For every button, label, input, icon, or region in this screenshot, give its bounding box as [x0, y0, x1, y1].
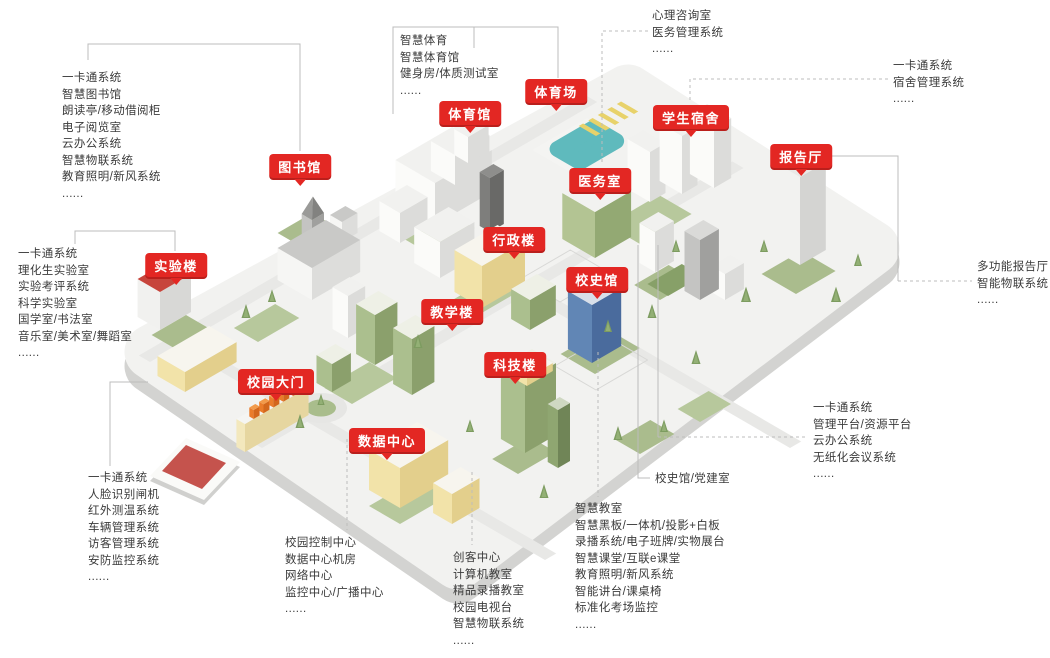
lab-systems-list: 一卡通系统 理化生实验室 实验考评系统 科学实验室 国学室/书法室 音乐室/美术… — [18, 246, 132, 362]
list-item: 医务管理系统 — [652, 25, 723, 42]
list-item: 一卡通系统 — [813, 400, 912, 417]
badge-gate: 校园大门 — [238, 369, 314, 395]
list-item: 一卡通系统 — [62, 70, 161, 87]
campus-map-art — [138, 92, 872, 576]
list-item: 一卡通系统 — [18, 246, 132, 263]
classroom-systems-list: 智慧教室 智慧黑板/一体机/投影+白板 录播系统/电子班牌/实物展台 智慧课堂/… — [575, 501, 725, 633]
list-item: ...... — [400, 83, 499, 100]
list-item: 智慧黑板/一体机/投影+白板 — [575, 518, 725, 535]
sports-systems-list: 智慧体育 智慧体育馆 健身房/体质测试室 ...... — [400, 33, 499, 99]
list-item: 云办公系统 — [62, 136, 161, 153]
list-item: 智慧图书馆 — [62, 87, 161, 104]
list-item: 健身房/体质测试室 — [400, 66, 499, 83]
connector-dorm — [690, 79, 888, 102]
list-item: 访客管理系统 — [88, 536, 159, 553]
list-item: 创客中心 — [453, 550, 524, 567]
list-item: 朗读亭/移动借阅柜 — [62, 103, 161, 120]
list-item: ...... — [18, 345, 132, 362]
list-item: ...... — [285, 601, 384, 618]
list-item: 实验考评系统 — [18, 279, 132, 296]
clinic-systems-list: 心理咨询室 医务管理系统 ...... — [652, 8, 723, 58]
list-item: 一卡通系统 — [893, 58, 964, 75]
list-item: 智能物联系统 — [977, 276, 1048, 293]
badge-stadium: 体育场 — [525, 79, 587, 105]
list-item: ...... — [62, 186, 161, 203]
library-systems-list: 一卡通系统 智慧图书馆 朗读亭/移动借阅柜 电子阅览室 云办公系统 智慧物联系统… — [62, 70, 161, 202]
list-item: 录播系统/电子班牌/实物展台 — [575, 534, 725, 551]
list-item: 智慧体育馆 — [400, 50, 499, 67]
list-item: 智慧教室 — [575, 501, 725, 518]
list-item: 红外测温系统 — [88, 503, 159, 520]
list-item: 理化生实验室 — [18, 263, 132, 280]
list-item: ...... — [652, 41, 723, 58]
hall-systems-list: 多功能报告厅 智能物联系统 ...... — [977, 259, 1048, 309]
badge-hall: 报告厅 — [770, 144, 832, 170]
list-item: 智慧物联系统 — [62, 153, 161, 170]
list-item: 科学实验室 — [18, 296, 132, 313]
list-item: 无纸化会议系统 — [813, 450, 912, 467]
list-item: 管理平台/资源平台 — [813, 417, 912, 434]
list-item: 智慧课堂/互联e课堂 — [575, 551, 725, 568]
list-item: 一卡通系统 — [88, 470, 159, 487]
dorm-systems-list: 一卡通系统 宿舍管理系统 ...... — [893, 58, 964, 108]
list-item: 监控中心/广播中心 — [285, 585, 384, 602]
list-item: 智慧物联系统 — [453, 616, 524, 633]
gate-systems-list: 一卡通系统 人脸识别闸机 红外测温系统 车辆管理系统 访客管理系统 安防监控系统… — [88, 470, 159, 586]
badge-dorm: 学生宿舍 — [653, 105, 729, 131]
history-rooms-label: 校史馆/党建室 — [655, 471, 730, 488]
list-item: 数据中心机房 — [285, 552, 384, 569]
list-item: 网络中心 — [285, 568, 384, 585]
list-item: ...... — [813, 466, 912, 483]
badge-history: 校史馆 — [566, 267, 628, 293]
list-item: 精品录播教室 — [453, 583, 524, 600]
list-item: 安防监控系统 — [88, 553, 159, 570]
list-item: 心理咨询室 — [652, 8, 723, 25]
maker-center-list: 创客中心 计算机教室 精品录播教室 校园电视台 智慧物联系统 ...... — [453, 550, 524, 649]
badge-lab: 实验楼 — [145, 253, 207, 279]
badge-teaching: 教学楼 — [421, 299, 483, 325]
list-item: ...... — [453, 633, 524, 650]
list-item: 教育照明/新风系统 — [62, 169, 161, 186]
list-item: 多功能报告厅 — [977, 259, 1048, 276]
list-item: ...... — [977, 292, 1048, 309]
badge-datacenter: 数据中心 — [349, 428, 425, 454]
control-center-list: 校园控制中心 数据中心机房 网络中心 监控中心/广播中心 ...... — [285, 535, 384, 618]
badge-clinic: 医务室 — [569, 168, 631, 194]
list-item: 音乐室/美术室/舞蹈室 — [18, 329, 132, 346]
list-item: 电子阅览室 — [62, 120, 161, 137]
badge-gym: 体育馆 — [439, 101, 501, 127]
connector-gate — [110, 382, 148, 466]
list-item: ...... — [893, 91, 964, 108]
list-item: 教育照明/新风系统 — [575, 567, 725, 584]
list-item: 国学室/书法室 — [18, 312, 132, 329]
smart-campus-diagram: 图书馆 实验楼 校园大门 数据中心 教学楼 科技楼 行政楼 校史馆 医务室 体育… — [0, 0, 1050, 658]
badge-library: 图书馆 — [269, 154, 331, 180]
list-item: 校园电视台 — [453, 600, 524, 617]
list-item: 校园控制中心 — [285, 535, 384, 552]
list-item: ...... — [575, 617, 725, 634]
list-item: 校史馆/党建室 — [655, 471, 730, 488]
list-item: 车辆管理系统 — [88, 520, 159, 537]
list-item: 计算机教室 — [453, 567, 524, 584]
badge-admin: 行政楼 — [483, 227, 545, 253]
badge-science: 科技楼 — [484, 352, 546, 378]
list-item: 智能讲台/课桌椅 — [575, 584, 725, 601]
list-item: 云办公系统 — [813, 433, 912, 450]
list-item: 智慧体育 — [400, 33, 499, 50]
list-item: 标准化考场监控 — [575, 600, 725, 617]
list-item: ...... — [88, 569, 159, 586]
admin-platform-list: 一卡通系统 管理平台/资源平台 云办公系统 无纸化会议系统 ...... — [813, 400, 912, 483]
list-item: 宿舍管理系统 — [893, 75, 964, 92]
list-item: 人脸识别闸机 — [88, 487, 159, 504]
